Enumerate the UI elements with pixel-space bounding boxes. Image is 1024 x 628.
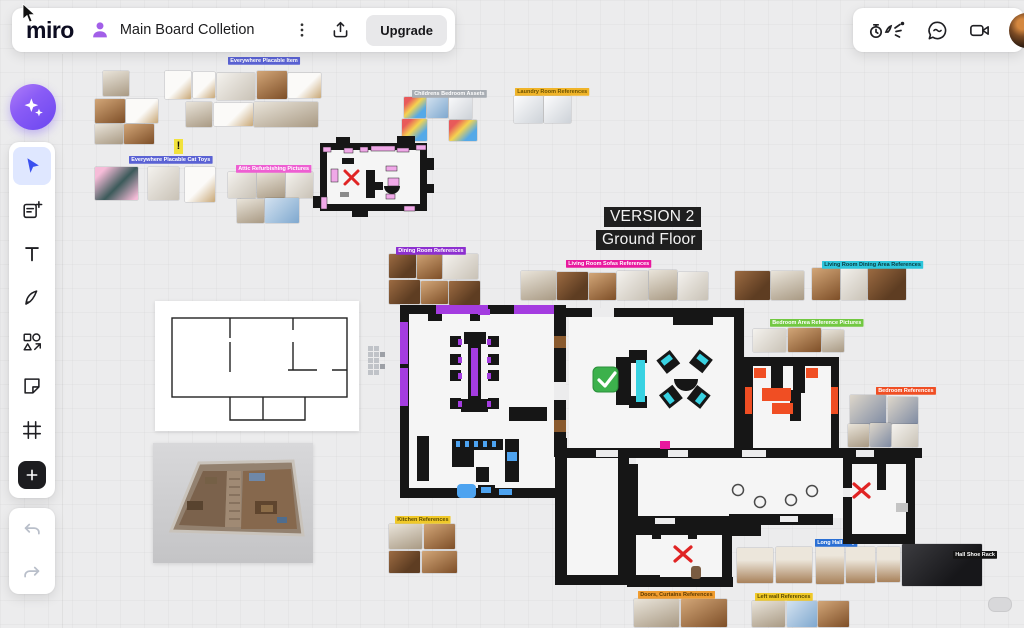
- cat-shelves-b-photo[interactable]: [288, 73, 321, 98]
- cat-toys-photo[interactable]: [95, 167, 138, 200]
- cat-shelves-a-photo[interactable]: [95, 124, 123, 144]
- hall-refs-photo[interactable]: [816, 540, 844, 584]
- simple-floorplan-card[interactable]: [155, 301, 359, 431]
- plan-label[interactable]: Sink: [459, 486, 472, 492]
- export-share-icon: [330, 20, 351, 41]
- minimap-pill[interactable]: [988, 597, 1012, 612]
- cat-shelves-b-photo[interactable]: [257, 71, 287, 99]
- plan-label[interactable]: sizing: [683, 450, 699, 456]
- refurbishing-photo[interactable]: [286, 172, 313, 198]
- cat-shelves-a-photo[interactable]: [95, 99, 125, 123]
- bedroom-refs-photo[interactable]: [870, 423, 891, 447]
- plan-label[interactable]: Bed: [758, 358, 770, 364]
- video-camera-icon: [968, 19, 991, 42]
- version-subtitle[interactable]: Ground Floor: [596, 230, 702, 250]
- kitchen-refs-photo[interactable]: [422, 551, 457, 573]
- plan-label[interactable]: Work Desk: [828, 389, 836, 413]
- cat-shelves-b-photo[interactable]: [193, 72, 215, 98]
- laundry-photo[interactable]: [544, 96, 571, 123]
- cat-shelves-b-photo[interactable]: [217, 73, 255, 100]
- plan-label[interactable]: Counter: [466, 454, 486, 460]
- cat-shelves-b-photo[interactable]: [254, 102, 318, 127]
- kids-toys-photo[interactable]: [449, 94, 472, 119]
- refurbishing-photo[interactable]: [257, 172, 285, 198]
- sofa-refs-photo[interactable]: [521, 271, 556, 300]
- plan-label[interactable]: Bed: [800, 358, 812, 364]
- cat-shelves-b-photo[interactable]: [186, 102, 212, 127]
- plan-label[interactable]: Living Room Dining Area: [698, 408, 755, 414]
- tool-templates[interactable]: [13, 191, 51, 229]
- dining-refs-photo[interactable]: [389, 254, 416, 278]
- header-bar: miro Main Board Colletion Upgrade: [12, 8, 455, 52]
- ai-assistant-button[interactable]: [10, 84, 56, 130]
- tool-frame[interactable]: [13, 411, 51, 449]
- board-tag[interactable]: Doors, Curtains References: [638, 591, 715, 598]
- board-tag[interactable]: Everywhere Placable Item: [228, 57, 300, 64]
- plan-label[interactable]: Living Room: [652, 337, 682, 343]
- board-tag[interactable]: Everywhere Placable Cat Toys: [129, 156, 212, 163]
- tool-select[interactable]: [13, 147, 51, 185]
- kitchen-refs-photo[interactable]: [389, 524, 422, 549]
- user-avatar[interactable]: [1009, 13, 1024, 48]
- dining-area-refs-photo[interactable]: [868, 268, 906, 300]
- select-cursor-icon: [21, 155, 43, 177]
- hall-refs-photo[interactable]: [877, 547, 900, 582]
- upgrade-button[interactable]: Upgrade: [366, 15, 447, 46]
- undo-button[interactable]: [13, 511, 51, 549]
- pen-icon: [21, 287, 43, 309]
- plan-label[interactable]: Sink: [415, 468, 428, 474]
- export-button[interactable]: [328, 18, 352, 42]
- doors-refs-photo[interactable]: [634, 599, 679, 627]
- sofa-refs-photo[interactable]: [649, 270, 677, 300]
- facilitation-tools-button[interactable]: [867, 18, 907, 42]
- laundry-photo[interactable]: [514, 96, 543, 123]
- dining-area-refs-photo[interactable]: [812, 268, 840, 300]
- kids-toys-photo[interactable]: [404, 97, 426, 118]
- kids-toys-photo[interactable]: [402, 119, 427, 141]
- cat-toys-photo[interactable]: [185, 167, 215, 202]
- bedroom-area-refs-photo[interactable]: [822, 330, 844, 352]
- chat-icon: [926, 19, 949, 42]
- floorplan-3d-drawing: [153, 443, 313, 563]
- board-tag[interactable]: Childrens Bedroom Assets: [412, 90, 487, 97]
- undo-icon: [21, 519, 43, 541]
- floorplan-3d-render[interactable]: [153, 443, 313, 563]
- leftwall-refs-photo[interactable]: [752, 601, 785, 627]
- bedroom-refs-photo[interactable]: [888, 397, 918, 424]
- plan-label[interactable]: Storage Chest: [771, 400, 805, 406]
- dining-area-refs-photo[interactable]: [841, 266, 867, 300]
- plan-label[interactable]: Parents Bedroom: [768, 433, 809, 439]
- board-tag[interactable]: Laundry Room References: [515, 88, 589, 95]
- dining-refs-photo[interactable]: [389, 280, 420, 304]
- sofa-refs-photo[interactable]: [617, 271, 648, 300]
- board-tag[interactable]: Long Hall Way: [815, 539, 857, 546]
- facilitation-tools-icon: [867, 18, 907, 42]
- tool-pen[interactable]: [13, 279, 51, 317]
- hall-refs-photo[interactable]: [776, 547, 812, 583]
- cat-shelves-a-photo[interactable]: [124, 124, 154, 144]
- doors-refs-photo[interactable]: [681, 599, 727, 627]
- kitchen-refs-photo[interactable]: [424, 524, 455, 549]
- plan-label[interactable]: Table: [677, 375, 691, 381]
- version-title[interactable]: VERSION 2: [604, 207, 701, 227]
- cat-shelves-b-photo[interactable]: [165, 71, 191, 99]
- dining-refs-photo[interactable]: [449, 281, 480, 305]
- sofa-refs-photo[interactable]: [589, 273, 616, 300]
- chat-button[interactable]: [925, 18, 949, 42]
- bedroom-refs-photo[interactable]: [848, 424, 869, 447]
- refurbishing-photo[interactable]: [237, 199, 264, 223]
- plan-label[interactable]: Wardrobe: [850, 456, 874, 462]
- plan-label[interactable]: Elements: [688, 313, 711, 319]
- kids-toys-photo[interactable]: [427, 96, 448, 118]
- plan-label[interactable]: Fridge: [415, 444, 432, 450]
- kitchen-refs-photo[interactable]: [389, 551, 420, 573]
- plan-label[interactable]: Bed: [773, 381, 785, 387]
- plan-label[interactable]: Sofa Element: [618, 398, 650, 404]
- bedroom-refs-photo[interactable]: [850, 395, 886, 424]
- plan-label[interactable]: Childrens Bedroom: [845, 510, 890, 516]
- plan-label[interactable]: Sofa: [621, 373, 634, 379]
- cat-shelves-a-photo[interactable]: [103, 71, 129, 96]
- collaboration-bar: [853, 8, 1024, 52]
- simple-floorplan-drawing: [155, 301, 359, 431]
- board-menu-button[interactable]: [290, 18, 314, 42]
- ai-sparkle-icon: [20, 94, 46, 120]
- board-tag[interactable]: Left wall References: [755, 593, 813, 600]
- board-tag[interactable]: Bedroom Area Reference Pictures: [770, 319, 863, 326]
- sticky-note-icon: [21, 375, 43, 397]
- plan-label[interactable]: Sink: [652, 564, 665, 570]
- mouse-cursor: [22, 3, 37, 24]
- tv-refs-photo[interactable]: [735, 271, 770, 300]
- board-tag[interactable]: Hall Shoe Rack: [953, 551, 997, 558]
- bedroom-area-refs-photo[interactable]: [788, 328, 821, 352]
- board-title[interactable]: Main Board Colletion: [120, 22, 255, 38]
- plus-icon: [24, 467, 40, 483]
- board-tag[interactable]: Dining Room References: [396, 247, 466, 254]
- cat-shelves-b-photo[interactable]: [214, 103, 253, 126]
- hall-refs-photo[interactable]: [846, 547, 875, 583]
- board-tag[interactable]: Attic Refurbishing Pictures: [236, 165, 311, 172]
- plan-label[interactable]: Dining Room Wiki: [517, 391, 558, 397]
- hall-refs-photo[interactable]: [737, 548, 773, 583]
- kebab-menu-icon: [293, 21, 311, 39]
- plan-label[interactable]: Sink: [631, 535, 644, 541]
- video-call-button[interactable]: [967, 18, 991, 42]
- plan-label[interactable]: sizing: [795, 450, 811, 456]
- board-tag[interactable]: Kitchen References: [395, 516, 451, 523]
- board-tag[interactable]: Living Room Sofas References: [566, 260, 651, 267]
- history-panel: [9, 508, 55, 594]
- dining-refs-photo[interactable]: [417, 252, 442, 279]
- board-tag[interactable]: Living Room Dining Area References: [822, 261, 923, 268]
- shapes-icon: [21, 331, 43, 353]
- leftwall-refs-photo[interactable]: [818, 601, 849, 627]
- cat-shelves-a-photo[interactable]: [126, 99, 158, 123]
- add-more-tools-button[interactable]: [18, 461, 46, 489]
- bedroom-area-refs-photo[interactable]: [753, 329, 786, 352]
- bedroom-refs-photo[interactable]: [892, 424, 918, 447]
- tool-text[interactable]: [13, 235, 51, 273]
- kids-toys-photo[interactable]: [449, 120, 477, 141]
- board-owner-icon: [88, 18, 112, 42]
- plan-label[interactable]: Bathroom: [692, 555, 716, 561]
- plan-label[interactable]: Dining Room: [417, 349, 448, 355]
- sofa-refs-photo[interactable]: [557, 272, 588, 300]
- plan-label[interactable]: Light Fan: [660, 529, 683, 535]
- dining-refs-photo[interactable]: [421, 281, 448, 304]
- text-icon: [21, 243, 43, 265]
- tool-sticky-note[interactable]: [13, 367, 51, 405]
- plan-label[interactable]: W/D: [671, 564, 683, 570]
- templates-icon: [21, 199, 43, 221]
- board-tag[interactable]: Bedroom References: [876, 387, 936, 394]
- tv-refs-photo[interactable]: [771, 271, 804, 300]
- redo-button[interactable]: [13, 554, 51, 592]
- plan-label[interactable]: Shelf: [745, 388, 753, 400]
- cat-toys-photo[interactable]: [148, 167, 179, 200]
- plan-label[interactable]: Bunk Bed: [881, 476, 905, 482]
- miro-board-app: Everywhere Placable ItemEverywhere Placa…: [0, 0, 1024, 628]
- plan-label[interactable]: Shower: [704, 534, 723, 540]
- tool-shapes[interactable]: [13, 323, 51, 361]
- sofa-refs-photo[interactable]: [678, 272, 708, 300]
- leftwall-refs-photo[interactable]: [787, 601, 817, 627]
- plan-label[interactable]: Sofa Element: [619, 348, 651, 354]
- exclamation-sticky[interactable]: !: [174, 139, 183, 154]
- tools-panel: [9, 142, 55, 498]
- refurbishing-photo[interactable]: [265, 198, 299, 223]
- dining-refs-photo[interactable]: [443, 254, 478, 279]
- refurbishing-photo[interactable]: [228, 172, 256, 198]
- frame-icon: [21, 419, 43, 441]
- redo-icon: [21, 562, 43, 584]
- plan-label[interactable]: sizing: [563, 450, 579, 456]
